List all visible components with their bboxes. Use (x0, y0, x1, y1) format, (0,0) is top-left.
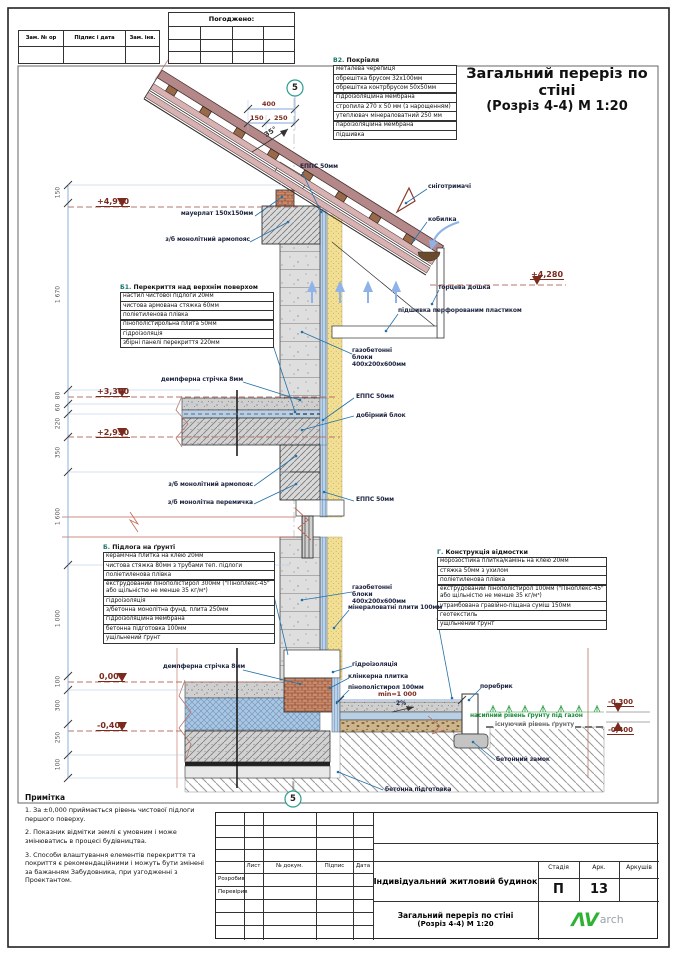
label-extra-block: добірний блок (356, 413, 406, 420)
roof-spec-title: Покрівля (347, 57, 380, 64)
roof-spec-code: В2. (333, 57, 344, 64)
drawing-title: Загальний переріз по стіні (Розріз 4-4) … (458, 66, 656, 114)
tb-col-sign: Підпис (316, 863, 353, 869)
label-min-width: min=1 000 (378, 691, 417, 698)
label-damper-upper: демпферна стрічка 8мм (143, 377, 243, 384)
label-gas-blocks-lower: газобетонні блоки 400х200х600мм (352, 585, 414, 606)
level-m400-left: -0,400 (96, 721, 127, 731)
label-epps-roof: ЕППС 50мм (300, 164, 338, 171)
floor-spec-code: Б. (103, 544, 110, 551)
dim-250: 250 (55, 723, 62, 753)
tb-object: Індивідуальний житловий будинок (373, 861, 538, 901)
spec-row: екструдований пінополістирол 300мм ("Пін… (103, 580, 275, 597)
label-lintel: з/б монолітна перемичка (153, 500, 253, 507)
apron-spec-title: Конструкція відмостки (445, 549, 527, 556)
level-m400-right: -0,400 (607, 726, 634, 735)
label-kobylka: кобилка (428, 217, 456, 224)
spec-row: ущільнений ґрунт (103, 633, 275, 643)
spec-row: збірні панелі перекриття 220мм (120, 338, 274, 348)
detail-marker-top: 5 (287, 83, 303, 93)
spec-row: екструдований пінополістирол 100мм ("Пін… (437, 585, 607, 602)
spec-row: підшивка (333, 130, 457, 140)
company-logo: ΛV arch (538, 901, 657, 938)
label-minwool: мінераловатні плити 100мм (348, 605, 442, 612)
level-0000: 0,000 (98, 672, 125, 682)
dim-100b: 100 (55, 750, 62, 780)
dim-1600: 1 600 (55, 502, 62, 532)
label-waterproofing: гідроізоляція (352, 662, 397, 669)
level-m300-right: -0,300 (607, 698, 634, 707)
title-block: Лист № докум. Підпис Дата Розробив Перев… (215, 812, 658, 939)
dim-1000: 1 000 (55, 604, 62, 634)
dim-top-250: 250 (274, 114, 288, 122)
ceiling-spec-code: Б1. (120, 284, 131, 291)
label-epps-mid: ЕППС 50мм (356, 394, 394, 401)
tb-sheets-label: Аркушів (619, 865, 659, 872)
notes: Примітка 1. За ±0,000 приймається рівень… (25, 793, 213, 890)
dim-350: 350 (55, 438, 62, 468)
label-curb: поребрик (480, 684, 513, 691)
logo-mark-icon: ΛV (571, 909, 596, 931)
detail-marker-bottom: 5 (285, 794, 301, 804)
label-soffit: підшивка перфорованим пластиком (398, 308, 522, 315)
floor-spec-table: Б. Підлога на ґрунті керамічна плитка на… (103, 544, 275, 644)
label-fascia: торцева дошка (438, 285, 491, 292)
notes-title: Примітка (25, 793, 213, 802)
dim-top-150: 150 (250, 114, 264, 122)
note-2: 2. Показник відмітки землі є умовним і м… (25, 828, 213, 845)
dim-top-400: 400 (262, 100, 276, 108)
level-4970: +4,970 (96, 197, 130, 207)
tb-stage-value: П (538, 882, 579, 897)
label-blinding: бетонна підготовка (385, 787, 451, 794)
stamp-cell: Підпис і дата (63, 31, 125, 46)
label-armopoias-upper: з/б монолітний армопояс (150, 237, 250, 244)
approved-label: Погоджено: (169, 13, 294, 27)
ceiling-spec-title: Перекриття над верхнім поверхом (134, 284, 258, 291)
tb-sheet-number: 13 (579, 882, 619, 897)
level-4280: +4,280 (530, 270, 564, 280)
level-3300: +3,300 (96, 387, 130, 397)
note-3: 3. Способи влаштування елементів перекри… (25, 851, 213, 886)
stamp-table: Зам. № ор Підпис і дата Зам. інв. № (18, 30, 160, 64)
spec-row: утеплювач мінераловатний 250 мм (333, 111, 457, 121)
label-fill-level: насипний рівень ґрунту під газон (470, 713, 583, 720)
drawing-sheet: Зам. № ор Підпис і дата Зам. інв. № Пого… (0, 0, 677, 955)
tb-col-list: Лист (244, 863, 263, 869)
stamp-cell: Зам. інв. № (125, 31, 159, 46)
apron-spec-table: Г. Конструкція відмостки морозостійка пл… (437, 549, 607, 630)
label-armopoias-lower: з/б монолітний армопояс (153, 482, 253, 489)
tb-stage-label: Стадія (538, 865, 579, 872)
level-2950: +2,950 (96, 428, 130, 438)
label-clinker: клінкерна плитка (348, 674, 408, 681)
drawing-title-line1: Загальний переріз по стіні (458, 66, 656, 99)
tb-row-checked: Перевірив (218, 889, 244, 895)
spec-row: стропила 270 х 50 мм (з нарощенням) (333, 102, 457, 112)
tb-drawing-title: Загальний переріз по стіні (Розріз 4-4) … (373, 901, 538, 938)
label-existing-level: існуючий рівень ґрунту (494, 722, 575, 729)
dim-1670: 1 670 (55, 280, 62, 310)
dim-150: 150 (55, 178, 62, 208)
note-1: 1. За ±0,000 приймається рівень чистової… (25, 806, 213, 823)
tb-title-line2: (Розріз 4-4) М 1:20 (417, 920, 493, 928)
label-slope: 2% (396, 701, 406, 708)
label-snow-guard: сніготримачі (428, 184, 471, 191)
roof-spec-table: В2. Покрівля металева черепиця обрешітка… (333, 57, 457, 140)
dim-220: 220 (55, 409, 62, 439)
label-damper-lower: демпферна стрічка 8мм (145, 664, 245, 671)
approved-table: Погоджено: (168, 12, 295, 64)
label-mauerlat: мауерлат 150х150мм (163, 211, 253, 218)
floor-spec-title: Підлога на ґрунті (112, 544, 175, 551)
apron-spec-code: Г. (437, 549, 443, 556)
label-gas-blocks-upper: газобетонні блоки 400х200х600мм (352, 348, 414, 369)
dim-300: 300 (55, 691, 62, 721)
tb-col-date: Дата (353, 863, 373, 869)
spec-row: ущільнений ґрунт (437, 620, 607, 630)
tb-row-developed: Розробив (218, 876, 244, 882)
tb-title-line1: Загальний переріз по стіні (398, 911, 514, 920)
label-concrete-lock: бетонний замок (496, 757, 550, 764)
tb-col-doc: № докум. (263, 863, 316, 869)
label-epps-lintel: ЕППС 50мм (356, 497, 394, 504)
stamp-cell: Зам. № ор (19, 31, 63, 46)
logo-text: arch (600, 913, 624, 926)
tb-sheet-label: Арк. (579, 865, 619, 872)
drawing-title-line2: (Розріз 4-4) М 1:20 (458, 99, 656, 114)
ceiling-spec-table: Б1. Перекриття над верхнім поверхом наст… (120, 284, 274, 348)
